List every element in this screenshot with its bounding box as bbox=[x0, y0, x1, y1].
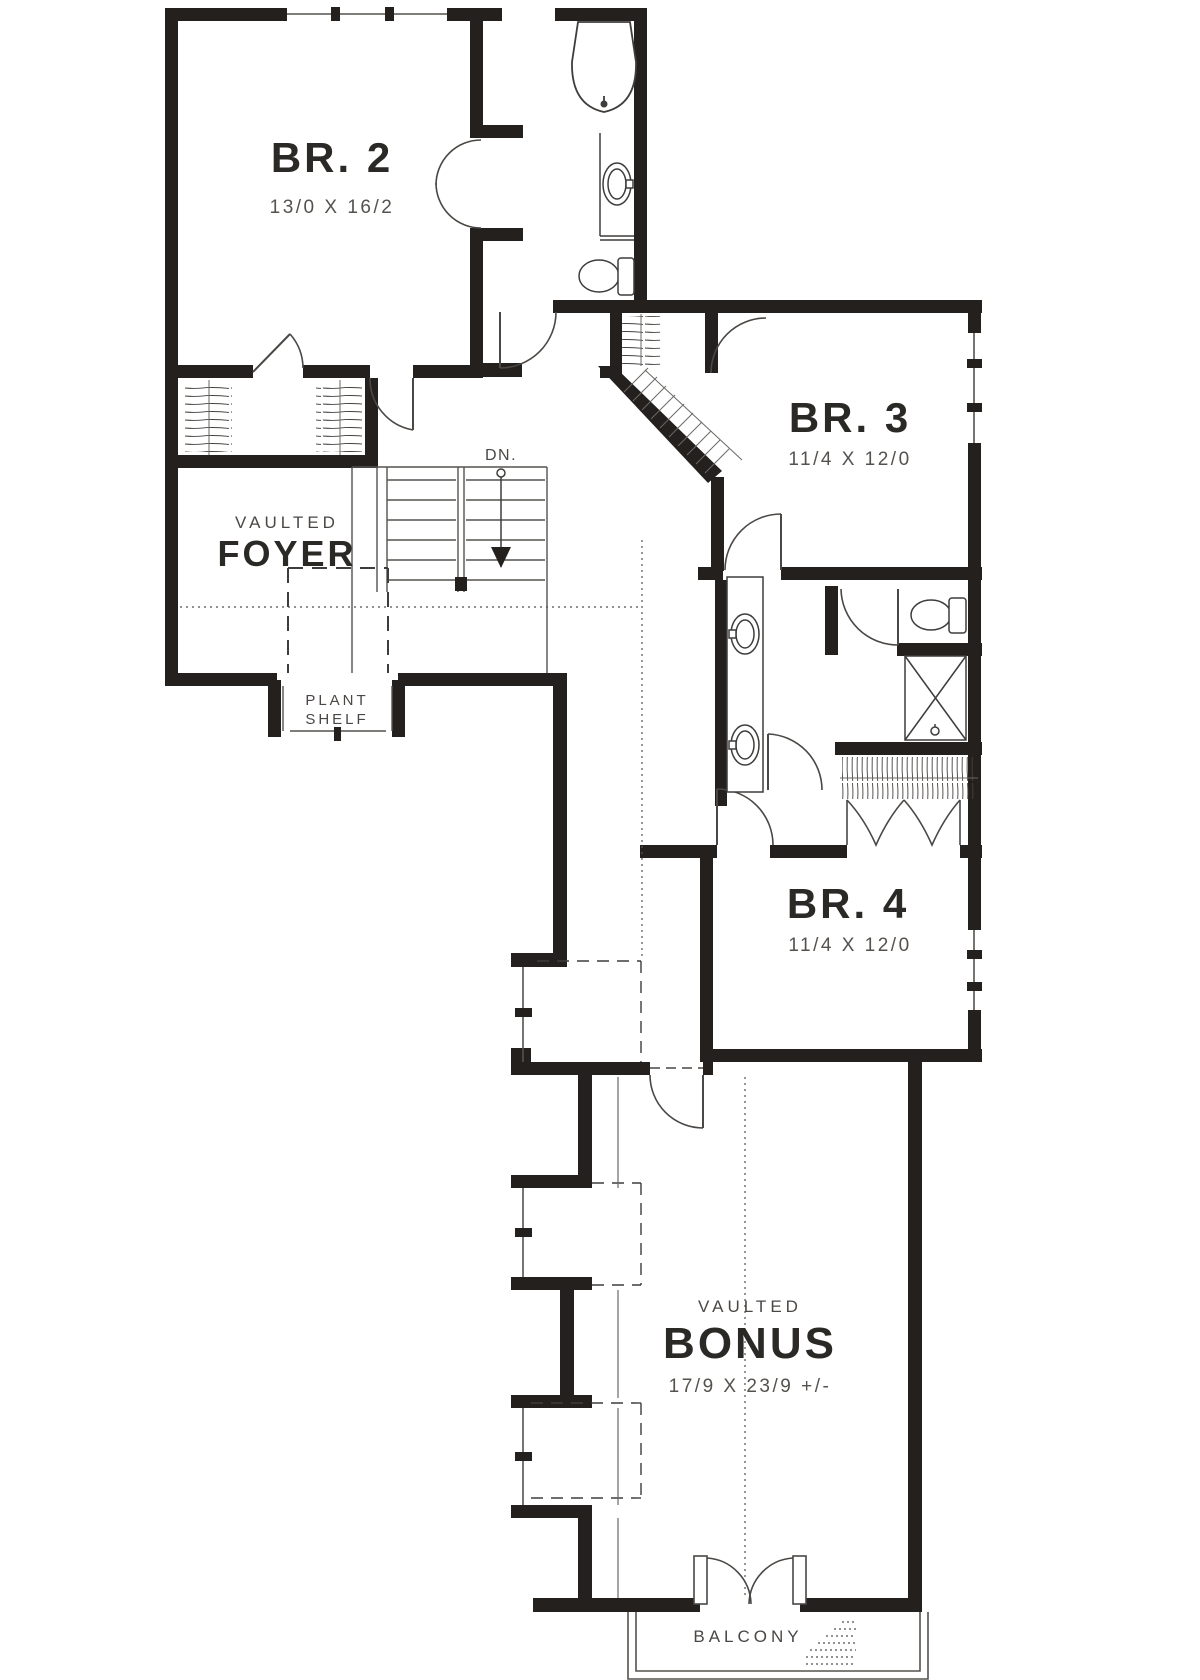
balcony-label: BALCONY bbox=[693, 1627, 802, 1646]
stair-newel bbox=[455, 577, 467, 591]
br4-dimensions: 11/4 X 12/0 bbox=[788, 935, 911, 956]
br4-label: BR. 4 bbox=[787, 880, 909, 927]
bonus-dimensions: 17/9 X 23/9 +/- bbox=[669, 1376, 832, 1397]
balcony-stipple bbox=[806, 1622, 856, 1664]
stairs bbox=[352, 467, 547, 673]
foyer-vaulted-label: VAULTED bbox=[235, 513, 339, 532]
br3-dimensions: 11/4 X 12/0 bbox=[788, 449, 911, 470]
balcony-french-doors bbox=[694, 1556, 806, 1604]
dashed-kneewall-lines bbox=[531, 961, 641, 1498]
shower-icon bbox=[905, 656, 966, 740]
plant-shelf-label-line2: SHELF bbox=[305, 711, 368, 728]
bonus-label: BONUS bbox=[663, 1319, 837, 1368]
closet-bifold-doors bbox=[847, 800, 960, 845]
doors bbox=[253, 140, 898, 1128]
dotted-ceiling-lines bbox=[180, 540, 745, 1597]
toilet-icon-middle-bath bbox=[911, 598, 966, 633]
walls bbox=[165, 8, 982, 1612]
foyer-label: FOYER bbox=[217, 533, 356, 574]
plant-shelf-label-line1: PLANT bbox=[305, 692, 368, 709]
bonus-vaulted-label: VAULTED bbox=[698, 1297, 802, 1316]
dashed-overhead-lines bbox=[288, 568, 388, 673]
br2-label: BR. 2 bbox=[271, 134, 393, 181]
bathtub-icon bbox=[572, 22, 636, 112]
bath-vanity-sink-icon bbox=[600, 133, 634, 240]
stairs-down-label: DN. bbox=[485, 447, 517, 464]
toilet-icon-top-bath bbox=[579, 258, 634, 295]
br2-dimensions: 13/0 X 16/2 bbox=[270, 197, 395, 218]
floor-plan: BR. 2 13/0 X 16/2 BR. 3 11/4 X 12/0 BR. … bbox=[0, 0, 1200, 1680]
br3-label: BR. 3 bbox=[789, 394, 911, 441]
stairs-down-arrow bbox=[491, 469, 511, 568]
double-vanity-sinks-icon bbox=[727, 577, 763, 792]
sloped-closet-hatch bbox=[624, 368, 742, 473]
floor-plan-drawing: BR. 2 13/0 X 16/2 BR. 3 11/4 X 12/0 BR. … bbox=[0, 0, 1200, 1680]
